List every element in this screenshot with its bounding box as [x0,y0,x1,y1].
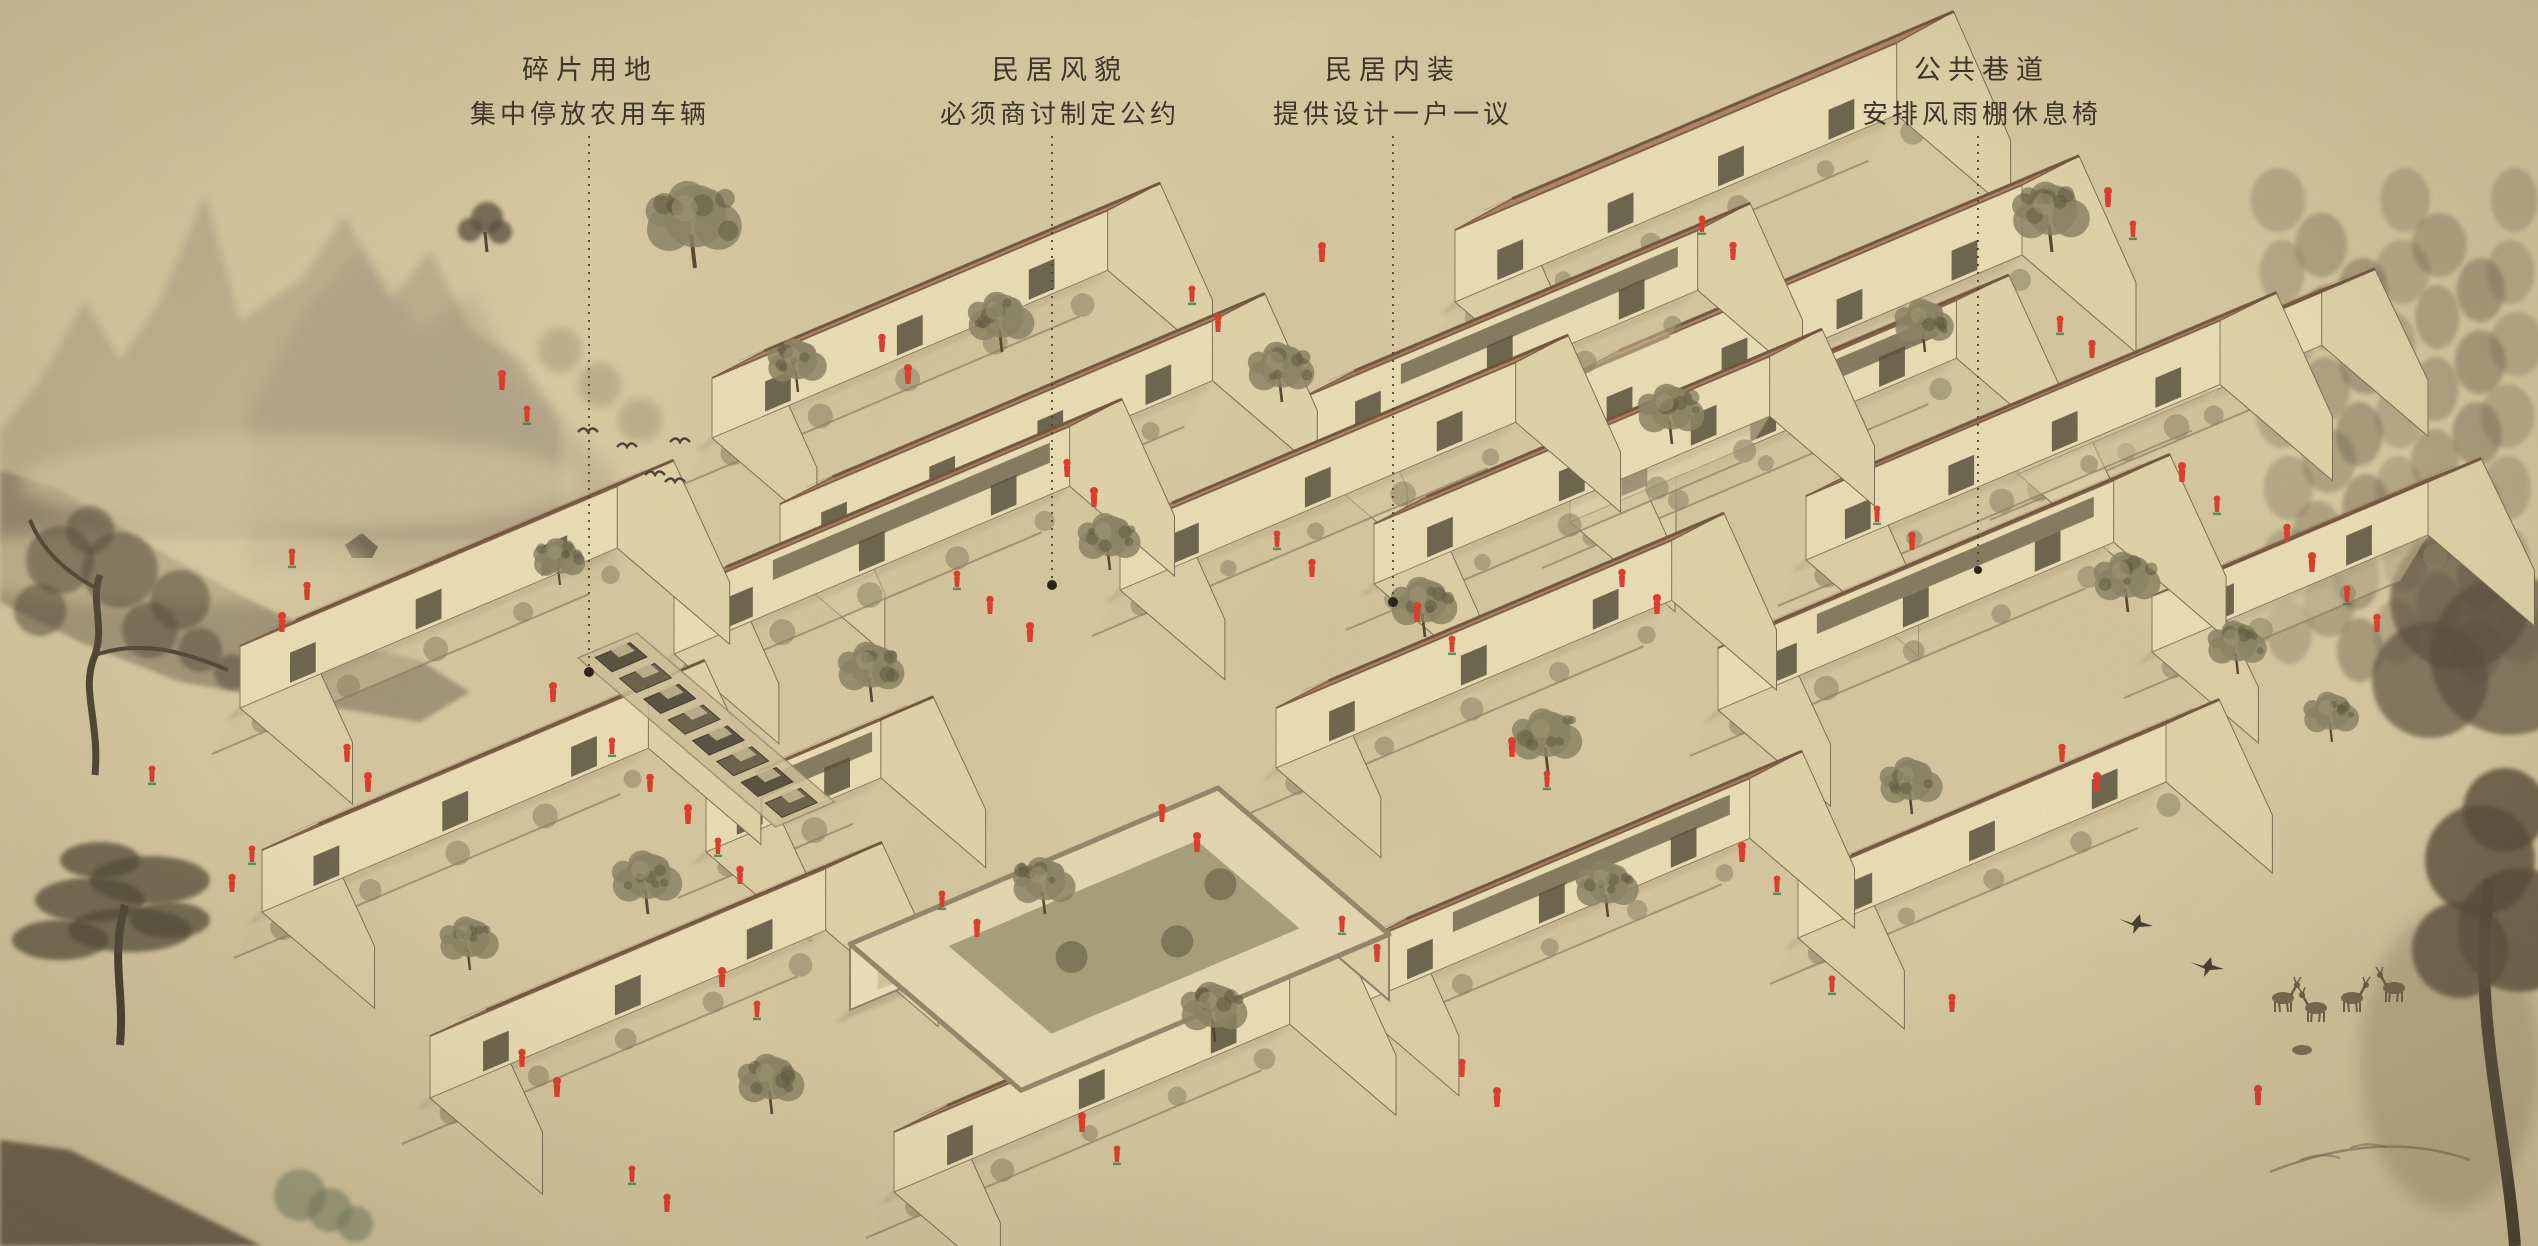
leader-dot [1047,580,1057,590]
leader-dot [584,667,594,677]
leader-dot [1388,597,1398,607]
leader-dot [1974,566,1982,574]
axonometric-village-poster: 碎片用地 集中停放农用车辆 民居风貌 必须商讨制定公约 民居内装 提供设计一户一… [0,0,2538,1246]
village-scene-canvas [0,0,2538,1246]
